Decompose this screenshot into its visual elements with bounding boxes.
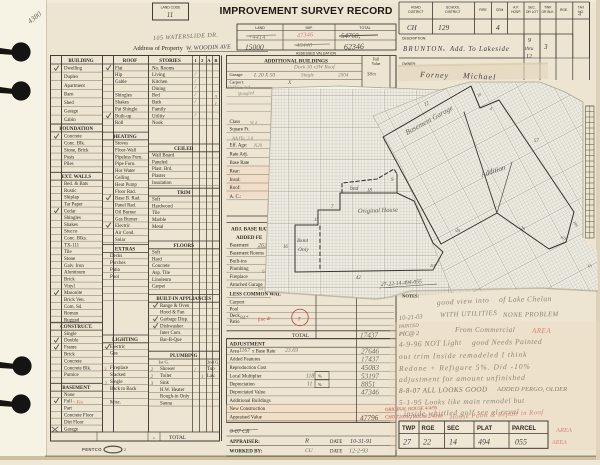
svg-text:CONSTRUCT.: CONSTRUCT. — [60, 325, 93, 330]
svg-text:Metal: Metal — [152, 225, 164, 230]
svg-text:Soft: Soft — [152, 250, 161, 255]
svg-text:8-8-07 ALL LOOKS GOOD: 8-8-07 ALL LOOKS GOOD — [399, 385, 488, 395]
svg-text:Rear:: Rear: — [230, 169, 241, 174]
svg-text:B: B — [214, 58, 217, 63]
svg-text:Pipe Furn.: Pipe Furn. — [115, 162, 135, 167]
svg-text:Shed: Shed — [64, 101, 74, 106]
svg-text:Part: Part — [64, 407, 73, 412]
svg-text:118: 118 — [306, 374, 314, 380]
svg-text:PENTCO: PENTCO — [82, 447, 102, 452]
svg-text:8851: 8851 — [361, 380, 375, 388]
svg-text:Michael: Michael — [462, 71, 497, 82]
svg-text:Kitchen: Kitchen — [152, 80, 168, 85]
svg-text:Stucco: Stucco — [64, 230, 78, 235]
svg-text:s: s — [443, 47, 445, 52]
svg-text:Pumice: Pumice — [64, 373, 79, 378]
svg-text:9: 9 — [528, 38, 531, 44]
svg-text:Conc. Blk.: Conc. Blk. — [64, 142, 85, 147]
svg-text:2nd G.: 2nd G. — [207, 360, 220, 365]
svg-text:Add. To Lakeside: Add. To Lakeside — [449, 46, 510, 53]
svg-text:PLUMBING: PLUMBING — [170, 354, 198, 359]
svg-text:Floor Rad.: Floor Rad. — [115, 190, 136, 195]
svg-text:Hip: Hip — [115, 73, 123, 78]
svg-text:Patio: Patio — [230, 320, 241, 325]
svg-text:Porches: Porches — [110, 261, 126, 266]
svg-text:53197: 53197 — [361, 372, 379, 380]
svg-text:Rough-in Only: Rough-in Only — [160, 395, 190, 400]
svg-text:CEILED: CEILED — [174, 147, 194, 152]
svg-text:055: 055 — [515, 438, 527, 447]
svg-text:Reproduction Cost: Reproduction Cost — [230, 366, 267, 371]
svg-text:Range & Oven: Range & Oven — [160, 304, 190, 309]
svg-text:53: 53 — [258, 287, 264, 292]
svg-text:Depreciation: Depreciation — [230, 382, 256, 387]
svg-text:12: 12 — [526, 54, 532, 60]
svg-text:47346: 47346 — [361, 389, 379, 397]
svg-text:Only: Only — [298, 247, 309, 253]
svg-text:PARCEL: PARCEL — [512, 426, 537, 432]
svg-text:R: R — [304, 438, 309, 445]
svg-text:494: 494 — [478, 438, 490, 447]
svg-text:Shower: Shower — [160, 367, 175, 372]
svg-text:Brick Ven.: Brick Ven. — [64, 298, 85, 303]
svg-text:17437: 17437 — [360, 332, 378, 340]
svg-text:TX-111: TX-111 — [64, 243, 80, 248]
svg-text:FIRE: FIRE — [479, 8, 487, 12]
svg-text:AREA: AREA — [551, 440, 567, 446]
svg-text:Air Cond.: Air Cond. — [115, 231, 135, 236]
svg-text:ADJUSTMENT: ADJUSTMENT — [230, 341, 266, 347]
svg-text:45083: 45083 — [361, 364, 379, 372]
svg-text:CH: CH — [407, 24, 418, 32]
svg-text:Hardwood: Hardwood — [152, 204, 173, 209]
svg-text:27: 27 — [403, 438, 412, 447]
svg-text:IMP.: IMP. — [306, 26, 313, 30]
svg-text:RGE: RGE — [422, 426, 435, 432]
svg-text:None: None — [64, 393, 75, 398]
svg-text:Solar: Solar — [115, 238, 126, 243]
svg-text:Electric: Electric — [115, 224, 131, 229]
svg-text:Barn: Barn — [64, 92, 74, 97]
svg-text:WORKED BY:: WORKED BY: — [230, 450, 263, 455]
svg-text:FOUNDATION: FOUNDATION — [59, 127, 93, 132]
svg-text:Tar Paper: Tar Paper — [64, 202, 83, 207]
svg-text:Additional Buildings: Additional Buildings — [230, 399, 271, 404]
svg-text:Brick: Brick — [64, 277, 75, 282]
svg-text:Stone: Stone — [64, 257, 75, 262]
svg-text:DISTRICT: DISTRICT — [445, 10, 460, 14]
svg-text:TWP.: TWP. — [544, 6, 552, 10]
svg-text:84*: 84* — [240, 314, 249, 321]
svg-text:A. C.:: A. C.: — [230, 195, 242, 200]
svg-text:Dirt Floor: Dirt Floor — [64, 420, 84, 425]
svg-text:O-D? ~ 2x4: O-D? ~ 2x4 — [228, 85, 251, 90]
svg-text:62346: 62346 — [344, 42, 364, 52]
svg-text:Concrete: Concrete — [64, 359, 82, 364]
svg-text:Concrete: Concrete — [64, 135, 82, 140]
svg-text:Paneled: Paneled — [152, 160, 168, 165]
svg-text:Added Features: Added Features — [230, 358, 261, 363]
svg-text:RGE.: RGE. — [560, 8, 568, 12]
svg-text:Built-up: Built-up — [115, 114, 132, 119]
svg-text:Duplex: Duplex — [64, 75, 79, 80]
svg-text:Dining: Dining — [152, 87, 166, 92]
svg-text:18: 18 — [367, 189, 372, 194]
svg-text:47796: 47796 — [360, 413, 379, 423]
svg-text:Shakes: Shakes — [64, 223, 78, 228]
svg-text:Shakes: Shakes — [115, 101, 129, 106]
svg-text:Fireplace: Fireplace — [110, 366, 128, 371]
svg-text:W 2: W 2 — [250, 120, 258, 125]
svg-text:Double: Double — [64, 339, 78, 344]
svg-text:ROAD: ROAD — [411, 6, 421, 10]
svg-text:DATE: DATE — [330, 440, 342, 445]
svg-text:Square Ft.: Square Ft. — [230, 128, 250, 133]
svg-text:Carport: Carport — [230, 301, 246, 306]
svg-text:TAX: TAX — [578, 6, 585, 10]
svg-text:Hood & Fan: Hood & Fan — [160, 311, 185, 316]
svg-text:Bar-B-Que: Bar-B-Que — [160, 338, 182, 343]
svg-text:14: 14 — [449, 438, 457, 447]
svg-text:Stoves: Stoves — [115, 142, 128, 147]
svg-text:Eff. Age:: Eff. Age: — [230, 144, 248, 149]
svg-text:Built-ins: Built-ins — [230, 259, 247, 264]
svg-text:ASSESSED VALUATION: ASSESSED VALUATION — [296, 52, 337, 56]
svg-text:s: s — [153, 435, 155, 440]
svg-text:Flat: Flat — [115, 66, 123, 71]
svg-text:10-31-91: 10-31-91 — [350, 439, 372, 445]
svg-text:of Lake Chelan: of Lake Chelan — [499, 294, 552, 304]
svg-text:Roman: Roman — [64, 312, 79, 317]
svg-text:Tub: Tub — [207, 367, 215, 372]
svg-text:OR BLK.: OR BLK. — [541, 10, 554, 14]
svg-text:Pipeless Furn.: Pipeless Furn. — [115, 155, 143, 160]
svg-text:210: 210 — [430, 264, 436, 268]
svg-text:23.69: 23.69 — [285, 348, 298, 354]
svg-text:TOTAL: TOTAL — [359, 26, 370, 30]
svg-text:AREA: AREA — [531, 327, 551, 335]
svg-text:Class: Class — [230, 120, 241, 125]
svg-text:EXTRAS: EXTRAS — [115, 247, 136, 252]
svg-text:L 20 X 50: L 20 X 50 — [253, 73, 275, 79]
svg-text:Dock 30 x3W Roof: Dock 30 x3W Roof — [293, 64, 336, 71]
svg-text:Toilet: Toilet — [160, 374, 172, 379]
svg-text:Dwelling: Dwelling — [64, 67, 83, 72]
svg-text:FLOORS: FLOORS — [173, 244, 194, 249]
svg-text:H.W. Heater: H.W. Heater — [160, 388, 185, 393]
svg-text:STORIES: STORIES — [159, 59, 181, 64]
svg-text:Ceiling: Ceiling — [115, 176, 130, 181]
svg-text:Stacked: Stacked — [110, 373, 126, 378]
svg-text:TWP: TWP — [402, 426, 415, 432]
svg-text:12-2-93: 12-2-93 — [349, 449, 368, 455]
svg-text:Apartment: Apartment — [64, 84, 86, 89]
svg-text:No. Rooms: No. Rooms — [152, 66, 174, 71]
svg-text:From Commercial: From Commercial — [454, 326, 515, 334]
svg-text:AAJTa, 2.0: AAJTa, 2.0 — [231, 137, 254, 142]
svg-text:Asp. Tile: Asp. Tile — [152, 271, 170, 276]
svg-text:PLAT: PLAT — [477, 426, 493, 432]
svg-text:PIC@ 2: PIC@ 2 — [398, 330, 420, 338]
svg-text:46440: 46440 — [296, 42, 313, 49]
svg-text:LAND CODE: LAND CODE — [161, 6, 182, 10]
svg-text:Bed. & Bats: Bed. & Bats — [64, 182, 88, 187]
svg-text:DATE: DATE — [330, 450, 342, 455]
svg-text:New Construction: New Construction — [230, 407, 266, 412]
svg-text:Basement: Basement — [230, 244, 250, 249]
svg-text:CEM.: CEM. — [496, 8, 504, 12]
svg-text:Single: Single — [110, 380, 123, 385]
svg-text:%: % — [318, 374, 322, 379]
svg-text:11: 11 — [307, 382, 312, 388]
svg-text:3: 3 — [150, 381, 154, 387]
svg-text:42: 42 — [356, 276, 361, 281]
svg-text:NOTES:: NOTES: — [402, 294, 420, 299]
svg-text:Marble: Marble — [152, 218, 166, 223]
svg-text:2: 2 — [151, 374, 154, 380]
svg-text:17437: 17437 — [361, 356, 379, 364]
svg-text:Concrete Floor: Concrete Floor — [64, 414, 94, 419]
svg-text:Posts: Posts — [64, 155, 74, 160]
svg-text:thru: thru — [525, 47, 534, 52]
svg-text:1: 1 — [201, 375, 204, 380]
svg-text:APPRAISER:: APPRAISER: — [230, 440, 261, 445]
svg-text:Conc. Blks.: Conc. Blks. — [64, 237, 87, 242]
svg-text:$8m: $8m — [367, 71, 376, 78]
svg-text:2004: 2004 — [338, 72, 349, 79]
svg-text:Nook: Nook — [152, 121, 163, 126]
svg-text:Depreciated Value: Depreciated Value — [230, 391, 266, 396]
svg-text:Gas: Gas — [110, 352, 118, 357]
svg-text:Garage: Garage — [64, 427, 78, 432]
svg-text:Family: Family — [152, 107, 166, 112]
svg-text:Gas Burner: Gas Burner — [115, 217, 138, 222]
svg-text:15000: 15000 — [245, 43, 264, 52]
svg-text:Bed: Bed — [152, 94, 160, 99]
svg-text:27646: 27646 — [361, 348, 379, 356]
svg-text:Oil Burner: Oil Burner — [115, 210, 136, 215]
svg-text:Plumbing: Plumbing — [230, 267, 250, 272]
svg-text:BASEMENT: BASEMENT — [62, 386, 91, 391]
svg-text:Basement Rooms: Basement Rooms — [230, 252, 264, 257]
svg-text:Hard: Hard — [152, 257, 162, 262]
svg-text:Soft: Soft — [152, 197, 161, 202]
svg-text:x Base Rate: x Base Rate — [252, 350, 275, 355]
svg-text:ROOF: ROOF — [123, 59, 137, 64]
svg-text:4: 4 — [496, 23, 500, 32]
svg-text:Tile: Tile — [152, 211, 160, 216]
svg-text:Roof:: Roof: — [230, 186, 241, 191]
svg-text:Plast. Brd.: Plast. Brd. — [152, 167, 173, 172]
svg-text:Appraised Value: Appraised Value — [230, 415, 262, 420]
svg-text:22: 22 — [423, 438, 431, 447]
svg-text:Wall Board: Wall Board — [152, 153, 175, 158]
svg-text:TRIM: TRIM — [177, 191, 191, 196]
svg-text:X: X — [287, 80, 292, 86]
svg-text:Floor-Wall: Floor-Wall — [115, 148, 137, 153]
svg-text:A.P.: A.P. — [513, 6, 519, 10]
svg-text:Forney: Forney — [419, 70, 449, 80]
svg-text:Plaster: Plaster — [152, 174, 166, 179]
svg-text:Single: Single — [64, 332, 77, 337]
svg-text:Full: Full — [373, 58, 379, 62]
svg-text:SEC: SEC — [447, 426, 460, 432]
svg-text:1: 1 — [215, 103, 218, 108]
svg-text:Original House: Original House — [358, 207, 398, 215]
svg-text:good Needs Painted: good Needs Painted — [472, 337, 542, 347]
svg-text:11: 11 — [167, 11, 173, 19]
svg-text:DISTRICT: DISTRICT — [408, 10, 423, 14]
svg-text:Garage: Garage — [64, 110, 78, 115]
svg-text:Bath: Bath — [152, 101, 162, 106]
svg-text:Shingles: Shingles — [64, 216, 81, 221]
svg-text:Garbage Disp.: Garbage Disp. — [160, 318, 188, 323]
svg-text:Full: Full — [64, 400, 73, 405]
svg-text:Aluminum: Aluminum — [64, 271, 85, 276]
svg-text:Living: Living — [152, 73, 166, 78]
svg-text:HOSP.: HOSP. — [511, 10, 521, 14]
svg-text:BUILDING: BUILDING — [68, 59, 93, 64]
svg-text:Single: Single — [301, 73, 315, 79]
svg-text:Dishwasher: Dishwasher — [160, 324, 183, 329]
svg-text:Base B. Rad.: Base B. Rad. — [115, 197, 141, 202]
svg-text:Frame: Frame — [64, 346, 77, 351]
svg-text:N20: N20 — [253, 144, 263, 149]
svg-text:Galv. Iron: Galv. Iron — [64, 264, 84, 269]
svg-text:CHO 7200SQ ROOM 2/40/08: CHO 7200SQ ROOM 2/40/08 — [385, 414, 443, 420]
svg-text:Gable: Gable — [115, 80, 127, 85]
svg-text:Bsmt: Bsmt — [297, 238, 309, 244]
svg-text:AREA: AREA — [555, 427, 572, 434]
svg-text:1st G.: 1st G. — [158, 360, 169, 365]
svg-text:LIGHTING: LIGHTING — [112, 338, 138, 343]
svg-text:Patio: Patio — [110, 268, 121, 273]
svg-text:Heat Pump: Heat Pump — [115, 183, 137, 188]
svg-text:Address of Property: Address of Property — [133, 45, 184, 52]
svg-text:Linoleum: Linoleum — [152, 278, 171, 283]
svg-text:HEATING: HEATING — [113, 135, 136, 140]
svg-text:16: 16 — [283, 245, 288, 250]
svg-text:Vinyl: Vinyl — [64, 284, 75, 289]
svg-text:Deck: Deck — [230, 314, 241, 319]
svg-text:DESCRIPTION:: DESCRIPTION: — [402, 37, 426, 41]
svg-text:NONE PROBLEM: NONE PROBLEM — [502, 311, 559, 319]
svg-text:CU: CU — [305, 448, 314, 454]
svg-text:Rustic: Rustic — [64, 189, 77, 194]
svg-text:Piles: Piles — [64, 162, 74, 167]
svg-text:Masonite: Masonite — [64, 291, 82, 296]
svg-text:Cabin: Cabin — [64, 118, 76, 123]
svg-text:Pool: Pool — [110, 275, 120, 280]
svg-text:OR LOT: OR LOT — [526, 10, 538, 14]
svg-text:Electric: Electric — [110, 345, 126, 350]
svg-text:Misc.: Misc. — [110, 401, 121, 406]
svg-text:Carpet: Carpet — [152, 285, 166, 290]
svg-text:Fireplace: Fireplace — [230, 275, 248, 280]
svg-text:Concrete Blk.: Concrete Blk. — [64, 366, 91, 371]
svg-text:IMPROVEMENT SURVEY RECORD: IMPROVEMENT SURVEY RECORD — [219, 6, 392, 17]
svg-text:Local Multiplier: Local Multiplier — [230, 374, 263, 379]
svg-text:Roll: Roll — [115, 121, 124, 126]
svg-text:Shiplap: Shiplap — [64, 196, 79, 201]
svg-text:%: % — [318, 382, 322, 387]
svg-text:EXT. WALLS: EXT. WALLS — [61, 175, 91, 180]
svg-text:Hot Water: Hot Water — [115, 169, 135, 174]
svg-text:3: 3 — [543, 43, 548, 51]
svg-text:SCHOOL: SCHOOL — [446, 6, 460, 10]
svg-text:129: 129 — [438, 23, 450, 32]
svg-text:Insul:: Insul: — [230, 178, 241, 183]
svg-text:SEC.: SEC. — [528, 6, 536, 10]
svg-text:Concrete: Concrete — [152, 264, 170, 269]
svg-text:BRUNTON: BRUNTON — [403, 46, 444, 53]
svg-text:Back to Back: Back to Back — [110, 387, 137, 392]
svg-text:47346: 47346 — [297, 31, 314, 39]
svg-text:Stone, Brick: Stone, Brick — [64, 148, 89, 153]
svg-text:Base Rate: Base Rate — [230, 161, 250, 166]
svg-text:Value: Value — [372, 62, 381, 66]
svg-text:ADDED PERGO, OLDER: ADDED PERGO, OLDER — [496, 386, 567, 393]
svg-text:Garage:: Garage: — [230, 72, 244, 77]
svg-text:4: 4 — [490, 106, 492, 111]
svg-text:15: 15 — [314, 218, 319, 223]
svg-text:BUILT-IN APPLIANCES: BUILT-IN APPLIANCES — [156, 297, 211, 302]
svg-text:TOTAL: TOTAL — [292, 333, 309, 339]
svg-text:Cedar: Cedar — [64, 209, 76, 214]
svg-text:Insulation: Insulation — [152, 181, 172, 186]
svg-text:Lav.: Lav. — [207, 374, 216, 379]
svg-text:LAND: LAND — [255, 26, 265, 30]
svg-text:bed: bed — [350, 186, 358, 192]
svg-text:Brick: Brick — [64, 353, 75, 358]
svg-text:Pat Shingle: Pat Shingle — [115, 107, 137, 112]
svg-text:Tile: Tile — [64, 250, 72, 255]
svg-text:Com. Sd.: Com. Sd. — [64, 305, 82, 310]
svg-text:ADDED FE: ADDED FE — [236, 235, 263, 241]
svg-text:Inter Com.: Inter Com. — [160, 331, 181, 336]
svg-text:1167: 1167 — [239, 348, 251, 354]
svg-text:Sauna: Sauna — [160, 401, 173, 406]
svg-text:57: 57 — [534, 139, 539, 144]
svg-text:~ Fin: ~ Fin — [73, 400, 84, 405]
svg-text:Utility: Utility — [152, 114, 165, 119]
svg-text:Decks: Decks — [110, 254, 122, 259]
svg-text:Panel Rad.: Panel Rad. — [115, 204, 136, 209]
svg-text:Pool: Pool — [230, 307, 240, 312]
svg-text:Shingles: Shingles — [115, 94, 132, 99]
svg-text:Rate Adj.: Rate Adj. — [230, 153, 248, 158]
svg-text:2: 2 — [151, 367, 154, 373]
svg-text:Sink: Sink — [160, 381, 170, 386]
svg-text:TOTAL: TOTAL — [169, 435, 186, 441]
